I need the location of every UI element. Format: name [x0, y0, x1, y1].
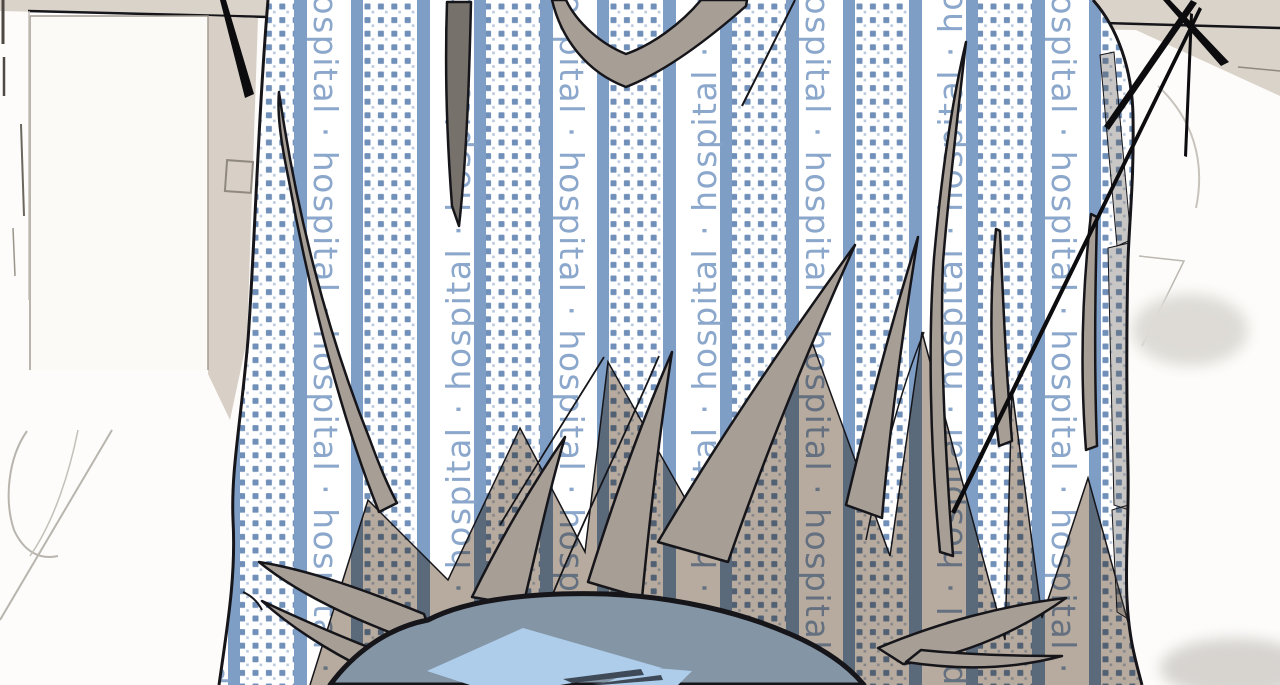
cabinet-panel	[30, 16, 208, 370]
manga-panel-drawing: hospital · hospital · hospital · hospita…	[0, 0, 1280, 685]
blanket-pattern-area	[200, 0, 1160, 685]
manga-panel: hospital · hospital · hospital · hospita…	[0, 0, 1280, 685]
hospital-blanket	[200, 0, 1160, 685]
pillow-shadow-blob	[1132, 294, 1248, 366]
